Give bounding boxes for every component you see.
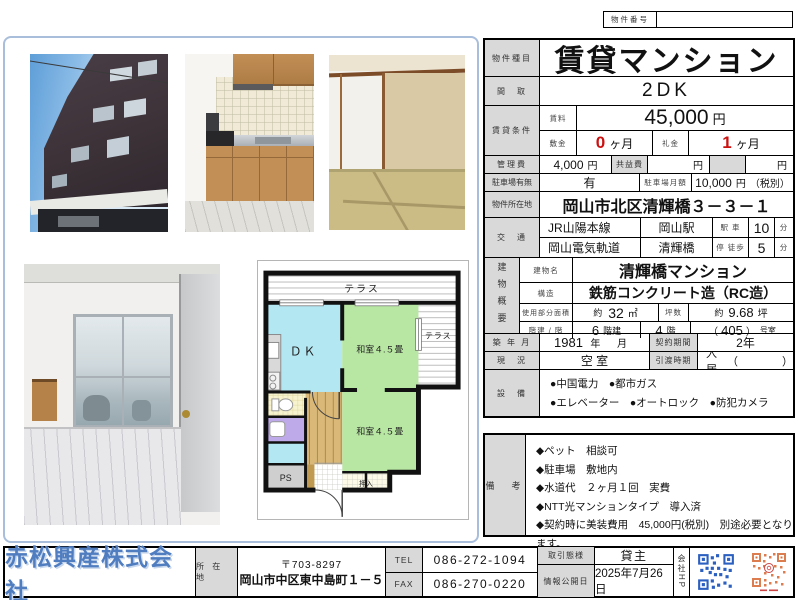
hallway-area	[306, 392, 343, 464]
rent-unit: 円	[713, 109, 726, 128]
building-name-label: 建物名	[520, 258, 572, 282]
equipment-label: 設 備	[485, 370, 539, 416]
structure-row: 構造 鉄筋コンクリート造（RC造）	[520, 282, 793, 303]
common-fee-label: 共益費	[611, 156, 647, 173]
footer-bar: 赤松興産株式会社 所 在 地 〒703-8297 岡山市中区東中島町１－５ TE…	[3, 546, 795, 598]
parking-fee-note: （税別）	[750, 175, 790, 190]
built-year-wrap: 1981 年	[554, 334, 600, 351]
management-fee-unit: 円	[588, 157, 598, 172]
area-unit: ㎡	[628, 305, 638, 320]
contract-value: 2年	[697, 334, 793, 351]
tsubo-approx: 約	[714, 306, 723, 319]
access-station: 清輝橋	[640, 238, 712, 257]
property-number-label: 物件番号	[604, 12, 657, 27]
tsubo-unit: 坪	[758, 305, 768, 320]
property-type-row: 物件種目 賃貸マンション	[485, 40, 793, 76]
parking-fee-unit: 円	[736, 175, 746, 190]
equipment-value: ●中国電力 ●都市ガス ●エレベーター ●オートロック ●防犯カメラ	[539, 370, 793, 416]
room-door	[179, 274, 220, 512]
remarks-line: ◆水道代 ２ヶ月１回 実費	[536, 479, 793, 498]
layout-value: 2DK	[539, 77, 793, 105]
kitchen-lower-cabinet	[206, 146, 314, 201]
key-money-label: 礼金	[652, 131, 688, 155]
tel-fax-block: TEL 086-272-1094 FAX 086-270-0220	[385, 548, 537, 596]
built-value: 1981 年 月	[539, 334, 649, 351]
rent-value: 45,000 円	[576, 106, 793, 130]
remarks-label: 備 考	[485, 435, 526, 535]
company-address: 〒703-8297 岡山市中区東中島町１－５	[237, 548, 385, 596]
structure-label: 構造	[520, 283, 572, 303]
conditions-row: 賃貸条件 賃料 45,000 円 敷金 0 ヶ月 礼金	[485, 105, 793, 155]
deposit-amount: 0	[596, 133, 605, 153]
photo-interior-room	[24, 264, 220, 525]
photo-panel: テラス テラス ＤＫ 和室４.５畳 和室４.５畳 押入 PS	[3, 36, 479, 543]
built-month-unit: 月	[617, 335, 627, 350]
company-address-value: 岡山市中区東中島町１－５	[239, 571, 383, 588]
equipment-row: 設 備 ●中国電力 ●都市ガス ●エレベーター ●オートロック ●防犯カメラ	[485, 369, 793, 416]
tel-value: 086-272-1094	[423, 548, 537, 572]
area-label: 使用部分面積	[520, 304, 572, 321]
access-row-1: JR山陽本線 岡山駅 駅 車 10 分	[540, 218, 793, 237]
building-overview-label: 建物概要	[485, 258, 519, 333]
structure-value: 鉄筋コンクリート造（RC造）	[572, 283, 793, 303]
company-name: 赤松興産株式会社	[5, 548, 195, 596]
deposit-label: 敷金	[540, 131, 576, 155]
remarks-line: ◆ペット 相談可	[536, 442, 793, 461]
entry-door-arc	[315, 490, 342, 517]
tatami-back-wall	[383, 73, 465, 175]
rent-label: 賃料	[540, 106, 576, 130]
photo-kitchen	[185, 54, 314, 232]
decorative-qr-code	[750, 551, 788, 593]
ps-label: PS	[280, 473, 292, 483]
room-floor	[24, 427, 181, 525]
handover-text: 即入居可	[706, 352, 723, 369]
company-hp-label: 会社HP	[673, 548, 689, 596]
property-number-value	[657, 12, 792, 27]
equipment-line-2: ●エレベーター ●オートロック ●防犯カメラ	[550, 394, 769, 413]
access-line: 岡山電気軌道	[540, 238, 640, 257]
floorplan-box: テラス テラス ＤＫ 和室４.５畳 和室４.５畳 押入 PS	[257, 260, 469, 520]
area-value: 約 32 ㎡	[572, 304, 658, 321]
tsubo-label: 坪数	[658, 304, 688, 321]
date-label: 情報公開日	[538, 565, 595, 597]
photo-tatami-room	[329, 55, 465, 230]
deal-value: 貸主	[595, 547, 673, 564]
management-fee-amount: 4,000	[553, 158, 583, 172]
blank-fee-value: 円	[745, 156, 793, 173]
deposit-key-row: 敷金 0 ヶ月 礼金 1 ヶ月	[540, 130, 793, 155]
deposit-unit: ヶ月	[609, 135, 633, 152]
company-address-label: 所 在 地	[195, 548, 237, 596]
kitchen-floor	[185, 201, 314, 232]
terrace-top-label: テラス	[344, 283, 379, 295]
common-fee-value: 円	[647, 156, 709, 173]
status-value: 空 室	[539, 352, 649, 369]
toilet-bowl	[279, 399, 293, 411]
key-money-amount: 1	[722, 133, 731, 153]
status-label: 現 況	[485, 352, 539, 369]
access-minutes: 5	[748, 238, 774, 257]
date-value: 2025年7月26日	[595, 565, 673, 597]
tsubo-amount: 9.68	[728, 305, 753, 320]
property-type-label: 物件種目	[485, 40, 539, 76]
remarks-line: ◆駐車場 敷地内	[536, 461, 793, 480]
building-overview-row: 建物概要 建物名 清輝橋マンション 構造 鉄筋コンクリート造（RC造） 使用部分…	[485, 257, 793, 333]
contract-label: 契約期間	[649, 334, 697, 351]
fax-row: FAX 086-270-0220	[386, 572, 537, 597]
tel-row: TEL 086-272-1094	[386, 548, 537, 572]
remarks-body: ◆ペット 相談可 ◆駐車場 敷地内 ◆水道代 ２ヶ月１回 実費 ◆NTT光マンシ…	[526, 435, 793, 535]
key-money-value: 1 ヶ月	[688, 131, 793, 155]
key-money-unit: ヶ月	[736, 135, 760, 152]
area-row: 使用部分面積 約 32 ㎡ 坪数 約 9.68 坪	[520, 303, 793, 321]
access-mode: 駅 車	[712, 218, 748, 237]
tsubo-value: 約 9.68 坪	[688, 304, 793, 321]
parking-row: 駐車場有無 有 駐車場月額 10,000 円 （税別）	[485, 173, 793, 191]
kitchen-sink	[255, 137, 291, 144]
tel-label: TEL	[386, 548, 423, 572]
area-amount: 32	[608, 305, 624, 321]
deposit-value: 0 ヶ月	[576, 131, 652, 155]
location-label: 物件所在地	[485, 192, 539, 217]
terrace-right-area	[418, 303, 458, 387]
parking-fee-label: 駐車場月額	[639, 174, 691, 191]
company-postal: 〒703-8297	[281, 556, 342, 571]
fax-label: FAX	[386, 573, 423, 597]
building-name-value: 清輝橋マンション	[572, 258, 793, 282]
parking-label: 駐車場有無	[485, 174, 539, 191]
deal-row: 取引態様 貸主	[538, 547, 673, 564]
blank-label	[709, 156, 745, 173]
building-name-row: 建物名 清輝橋マンション	[520, 258, 793, 282]
built-year: 1981	[554, 335, 583, 350]
location-value: 岡山市北区清輝橋３－３－１	[539, 192, 793, 217]
built-label: 築 年 月	[485, 334, 539, 351]
qr-block	[689, 548, 793, 596]
parking-fee-amount: 10,000	[695, 176, 732, 190]
equipment-line-1: ●中国電力 ●都市ガス	[550, 375, 657, 394]
property-flyer: 物件番号	[0, 0, 800, 600]
management-fee-value: 4,000 円	[539, 156, 611, 173]
deal-label: 取引態様	[538, 547, 595, 564]
management-fee-label: 管理費	[485, 156, 539, 173]
listing-table: 物件種目 賃貸マンション 間 取 2DK 賃貸条件 賃料 45,000 円 敷金	[483, 38, 795, 418]
conditions-label: 賃貸条件	[485, 106, 539, 155]
parking-value: 有	[539, 174, 639, 191]
access-minutes: 10	[748, 218, 774, 237]
dk-label: ＤＫ	[290, 344, 318, 358]
management-fee-row: 管理費 4,000 円 共益費 円 円	[485, 155, 793, 173]
access-row: 交 通 JR山陽本線 岡山駅 駅 車 10 分 岡山電気軌道 清輝橋 停 徒歩 …	[485, 217, 793, 257]
built-row: 築 年 月 1981 年 月 契約期間 2年	[485, 333, 793, 351]
side-cabinet	[32, 379, 57, 421]
closet-label: 押入	[359, 479, 373, 488]
rent-row: 賃料 45,000 円	[540, 106, 793, 130]
wash-basin	[270, 422, 285, 437]
handover-label: 引渡時期	[649, 352, 697, 369]
date-row: 情報公開日 2025年7月26日	[538, 564, 673, 597]
japanese-room-1-label: 和室４.５畳	[356, 343, 403, 354]
remarks-line: ◆NTT光マンションタイプ 導入済	[536, 498, 793, 517]
entry-area	[314, 464, 342, 490]
range-hood	[233, 84, 273, 90]
handover-paren: （ ）	[727, 353, 793, 369]
location-row: 物件所在地 岡山市北区清輝橋３－３－１	[485, 191, 793, 217]
built-year-unit: 年	[590, 339, 600, 350]
access-mode: 停 徒歩	[712, 238, 748, 257]
company-hp-qr-code	[696, 552, 736, 592]
access-unit: 分	[774, 238, 793, 257]
photo-building-exterior	[30, 54, 168, 232]
status-row: 現 況 空 室 引渡時期 即入居可 （ ）	[485, 351, 793, 369]
deal-date-block: 取引態様 貸主 情報公開日 2025年7月26日	[537, 548, 673, 596]
property-number-box: 物件番号	[603, 11, 793, 28]
rent-amount: 45,000	[644, 106, 708, 130]
japanese-room-2-label: 和室４.５畳	[356, 426, 403, 437]
access-unit: 分	[774, 218, 793, 237]
access-label: 交 通	[485, 218, 539, 257]
handover-value: 即入居可 （ ）	[697, 352, 793, 369]
floorplan-svg: テラス テラス ＤＫ 和室４.５畳 和室４.５畳 押入 PS	[258, 261, 468, 519]
layout-row: 間 取 2DK	[485, 76, 793, 105]
parking-fee-value: 10,000 円 （税別）	[691, 174, 793, 191]
access-row-2: 岡山電気軌道 清輝橋 停 徒歩 5 分	[540, 237, 793, 257]
area-approx: 約	[593, 306, 602, 319]
bath-area	[266, 443, 306, 465]
fax-value: 086-270-0220	[423, 573, 537, 597]
door-knob	[182, 410, 190, 418]
remarks-table: 備 考 ◆ペット 相談可 ◆駐車場 敷地内 ◆水道代 ２ヶ月１回 実費 ◆NTT…	[483, 433, 795, 537]
property-type-value: 賃貸マンション	[539, 40, 793, 76]
terrace-right-label: テラス	[425, 331, 452, 340]
access-station: 岡山駅	[640, 218, 712, 237]
access-line: JR山陽本線	[540, 218, 640, 237]
layout-label: 間 取	[485, 77, 539, 105]
